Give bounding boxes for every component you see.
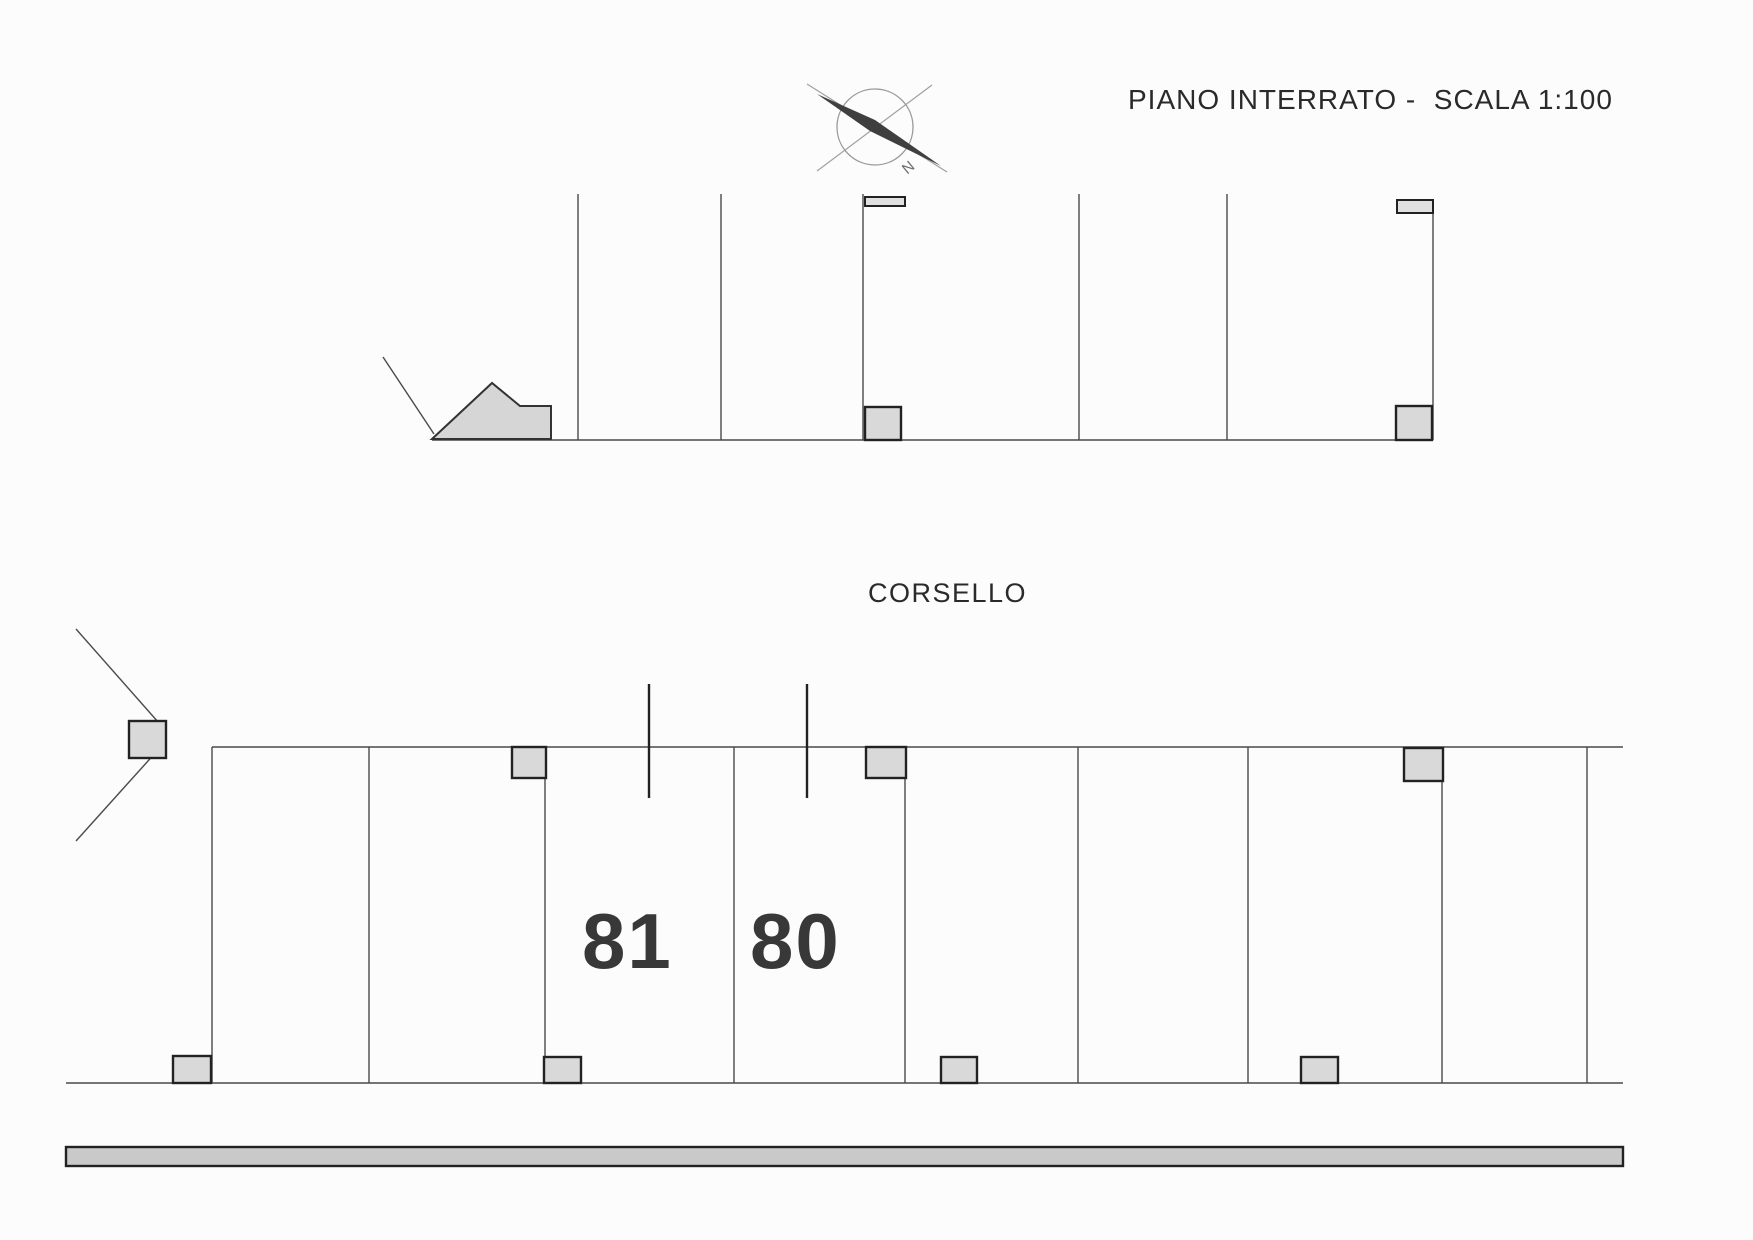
entry-wall-line: [76, 629, 166, 731]
floor-plan-drawing: N: [0, 0, 1753, 1240]
north-needle-icon: [817, 94, 941, 166]
pillar: [544, 1057, 581, 1083]
pillar: [512, 747, 546, 778]
upper-parking-row: [383, 194, 1433, 440]
pillar: [173, 1056, 211, 1083]
road-strip: [66, 1147, 1623, 1166]
stall-number-80: 80: [750, 896, 841, 987]
plan-title: PIANO INTERRATO - SCALA 1:100: [1128, 84, 1613, 116]
ramp-edge-line: [383, 357, 434, 434]
wall-segment: [865, 197, 905, 206]
lower-parking-row: [66, 629, 1623, 1166]
pillar: [866, 747, 906, 778]
compass-icon: N: [807, 84, 947, 178]
north-label: N: [899, 158, 918, 178]
corsello-label: CORSELLO: [868, 578, 1027, 609]
pillar: [129, 721, 166, 758]
pillar: [941, 1057, 977, 1083]
pillar: [865, 407, 901, 440]
floor-plan-page: N: [0, 0, 1753, 1240]
wall-segment: [1397, 200, 1433, 213]
pillar: [1396, 406, 1432, 440]
ramp-arrow: [432, 383, 551, 439]
pillar: [1404, 748, 1443, 781]
stall-number-81: 81: [582, 896, 673, 987]
pillar: [1301, 1057, 1338, 1083]
